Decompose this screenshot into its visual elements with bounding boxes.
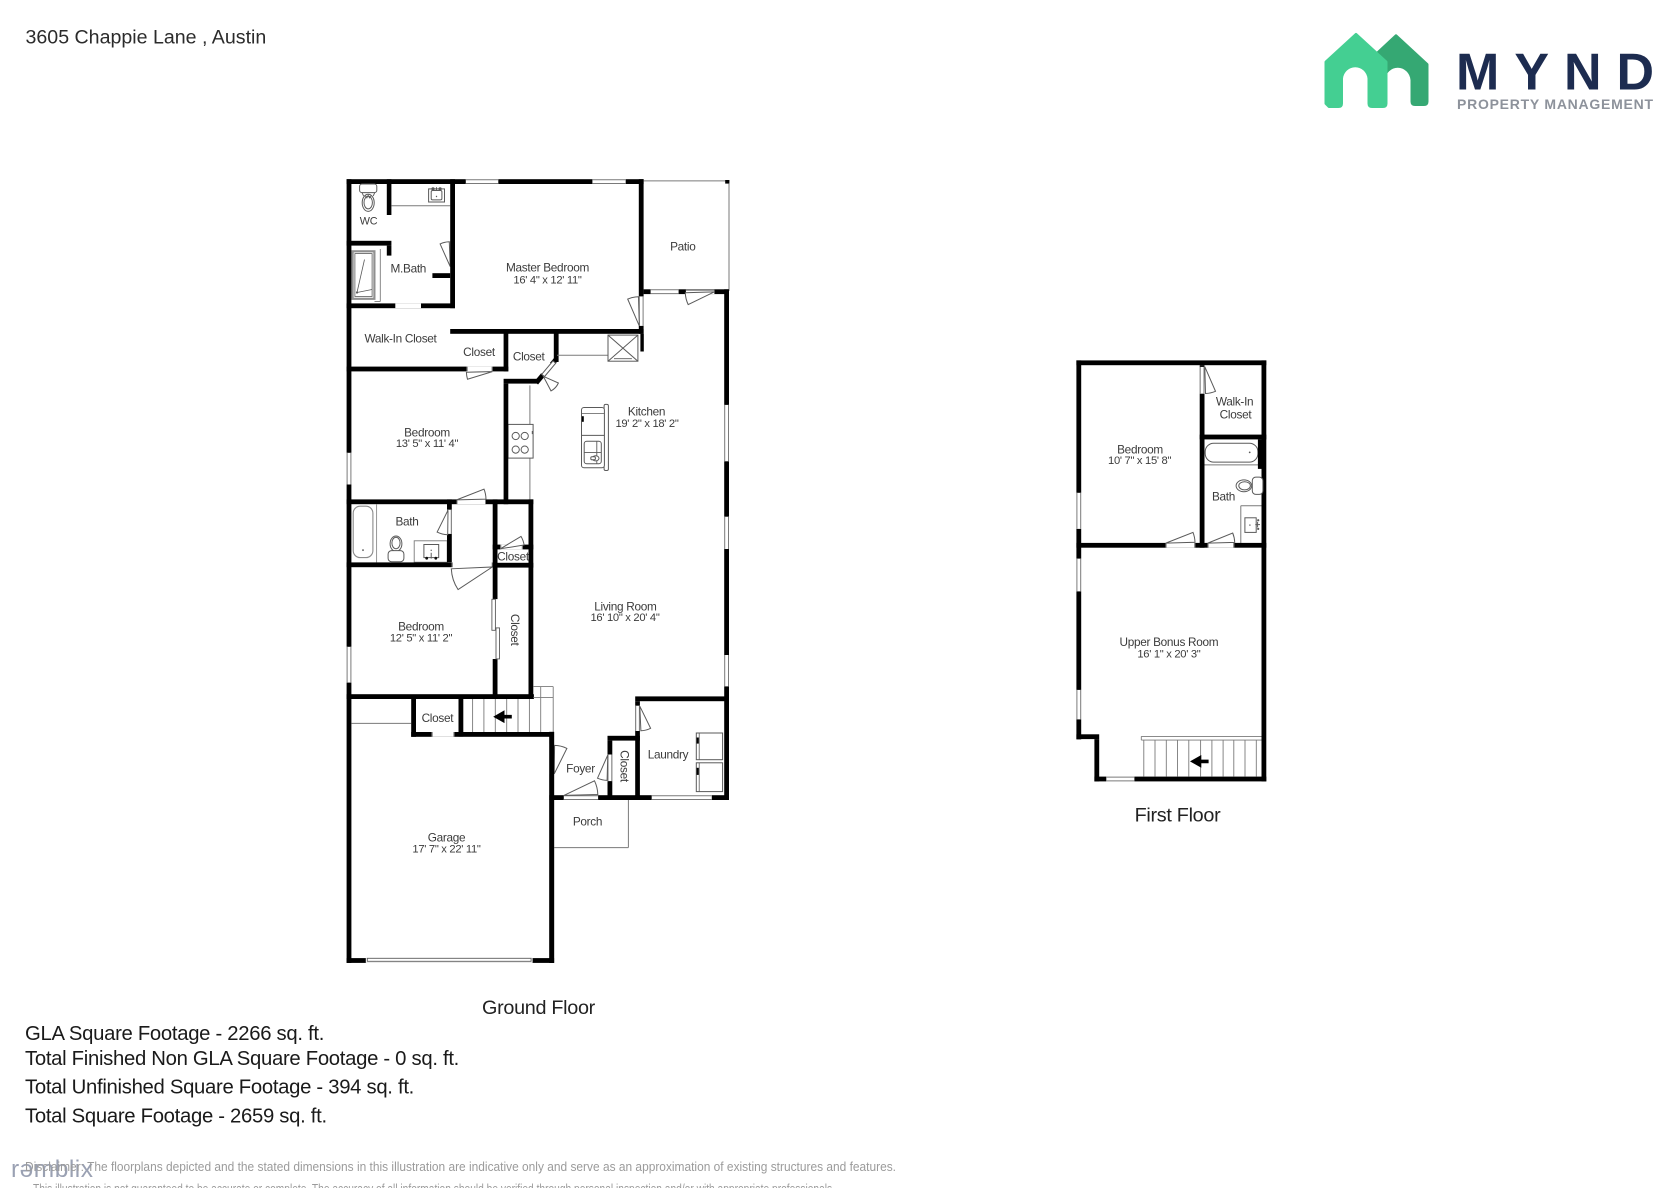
svg-text:First Floor: First Floor (1135, 805, 1221, 827)
svg-text:Total Square Footage - 2659 sq: Total Square Footage - 2659 sq. ft. (25, 1105, 327, 1127)
svg-text:Closet: Closet (513, 349, 546, 363)
svg-text:Bath: Bath (1212, 490, 1235, 504)
svg-text:Closet: Closet (463, 345, 496, 359)
svg-text:Closet: Closet (497, 549, 530, 563)
svg-text:Bedroom: Bedroom (404, 425, 450, 439)
svg-text:Ground Floor: Ground Floor (482, 997, 596, 1019)
svg-text:10' 7" x 15' 8": 10' 7" x 15' 8" (1108, 455, 1171, 467)
svg-text:Patio: Patio (670, 239, 696, 253)
svg-text:3605 Chappie Lane , Austin: 3605 Chappie Lane , Austin (26, 27, 267, 49)
svg-text:16' 10" x 20' 4": 16' 10" x 20' 4" (591, 612, 660, 624)
svg-text:Total Finished Non GLA Square: Total Finished Non GLA Square Footage - … (25, 1048, 459, 1070)
svg-text:Disclaimer: The floorplans dep: Disclaimer: The floorplans depicted and … (25, 1159, 896, 1174)
svg-text:Upper Bonus Room: Upper Bonus Room (1119, 635, 1218, 649)
svg-text:Kitchen: Kitchen (628, 405, 665, 419)
svg-text:Closet: Closet (617, 750, 631, 783)
svg-text:Closet: Closet (422, 711, 455, 725)
svg-text:17' 7" x 22' 11": 17' 7" x 22' 11" (412, 843, 480, 855)
svg-text:Master Bedroom: Master Bedroom (506, 260, 589, 274)
svg-text:Laundry: Laundry (648, 747, 689, 761)
svg-text:13' 5" x 11' 4": 13' 5" x 11' 4" (396, 438, 459, 450)
svg-text:16' 4" x 12' 11": 16' 4" x 12' 11" (513, 274, 581, 286)
svg-text:19' 2" x 18' 2": 19' 2" x 18' 2" (615, 418, 678, 430)
svg-text:Bedroom: Bedroom (398, 620, 444, 634)
svg-text:WC: WC (360, 215, 378, 227)
svg-text:Foyer: Foyer (566, 761, 595, 775)
svg-text:Porch: Porch (573, 815, 602, 829)
svg-text:PROPERTY MANAGEMENT: PROPERTY MANAGEMENT (1457, 96, 1654, 112)
svg-text:Walk-In: Walk-In (1216, 395, 1253, 409)
svg-text:Total Unfinished Square Footag: Total Unfinished Square Footage - 394 sq… (25, 1077, 414, 1099)
svg-text:16' 1" x 20' 3": 16' 1" x 20' 3" (1137, 648, 1200, 660)
svg-text:Walk-In Closet: Walk-In Closet (364, 331, 437, 345)
svg-text:Garage: Garage (428, 830, 466, 844)
svg-text:MYND: MYND (1456, 44, 1669, 102)
svg-text:Closet: Closet (508, 614, 522, 647)
svg-text:12' 5" x 11' 2": 12' 5" x 11' 2" (390, 633, 453, 645)
svg-text:Bedroom: Bedroom (1117, 442, 1163, 456)
svg-text:This illustration is not guara: This illustration is not guaranteed to b… (33, 1181, 835, 1188)
svg-text:M.Bath: M.Bath (391, 261, 427, 275)
svg-text:GLA Square Footage - 2266 sq.: GLA Square Footage - 2266 sq. ft. (25, 1023, 324, 1045)
svg-text:Bath: Bath (395, 514, 418, 528)
svg-text:Closet: Closet (1220, 408, 1253, 422)
